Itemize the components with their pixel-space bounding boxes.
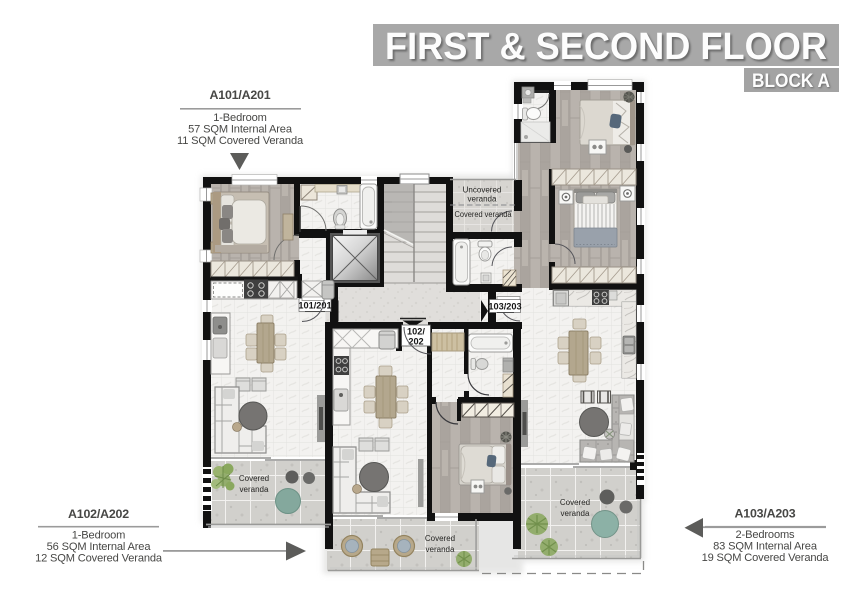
svg-text:1-Bedroom: 1-Bedroom	[72, 530, 126, 542]
svg-text:101/201: 101/201	[298, 301, 331, 311]
svg-text:Covered veranda: Covered veranda	[455, 210, 513, 219]
svg-text:1-Bedroom: 1-Bedroom	[213, 112, 267, 124]
svg-text:12 SQM Covered Veranda: 12 SQM Covered Veranda	[35, 553, 163, 565]
svg-text:2-Bedrooms: 2-Bedrooms	[736, 529, 796, 541]
svg-text:Covered: Covered	[560, 498, 590, 507]
svg-text:Covered: Covered	[425, 534, 455, 543]
svg-text:veranda: veranda	[561, 509, 590, 518]
svg-text:BLOCK A: BLOCK A	[752, 71, 830, 92]
svg-text:56 SQM Internal Area: 56 SQM Internal Area	[47, 541, 152, 553]
svg-text:A102/A202: A102/A202	[68, 507, 129, 521]
svg-text:11 SQM Covered Veranda: 11 SQM Covered Veranda	[177, 135, 304, 147]
svg-text:veranda: veranda	[240, 485, 269, 494]
svg-text:veranda: veranda	[468, 195, 497, 204]
svg-text:57 SQM Internal Area: 57 SQM Internal Area	[188, 124, 293, 136]
svg-text:FIRST & SECOND FLOOR: FIRST & SECOND FLOOR	[385, 26, 827, 68]
svg-text:Uncovered: Uncovered	[463, 186, 502, 195]
svg-text:A103/A203: A103/A203	[735, 507, 796, 521]
svg-text:veranda: veranda	[426, 545, 455, 554]
svg-text:83 SQM Internal Area: 83 SQM Internal Area	[713, 541, 818, 553]
svg-text:102/: 102/	[407, 327, 425, 337]
svg-text:A101/A201: A101/A201	[210, 88, 271, 102]
svg-text:Covered: Covered	[239, 474, 269, 483]
svg-text:103/203: 103/203	[488, 302, 521, 312]
svg-text:19 SQM Covered Veranda: 19 SQM Covered Veranda	[702, 552, 830, 564]
